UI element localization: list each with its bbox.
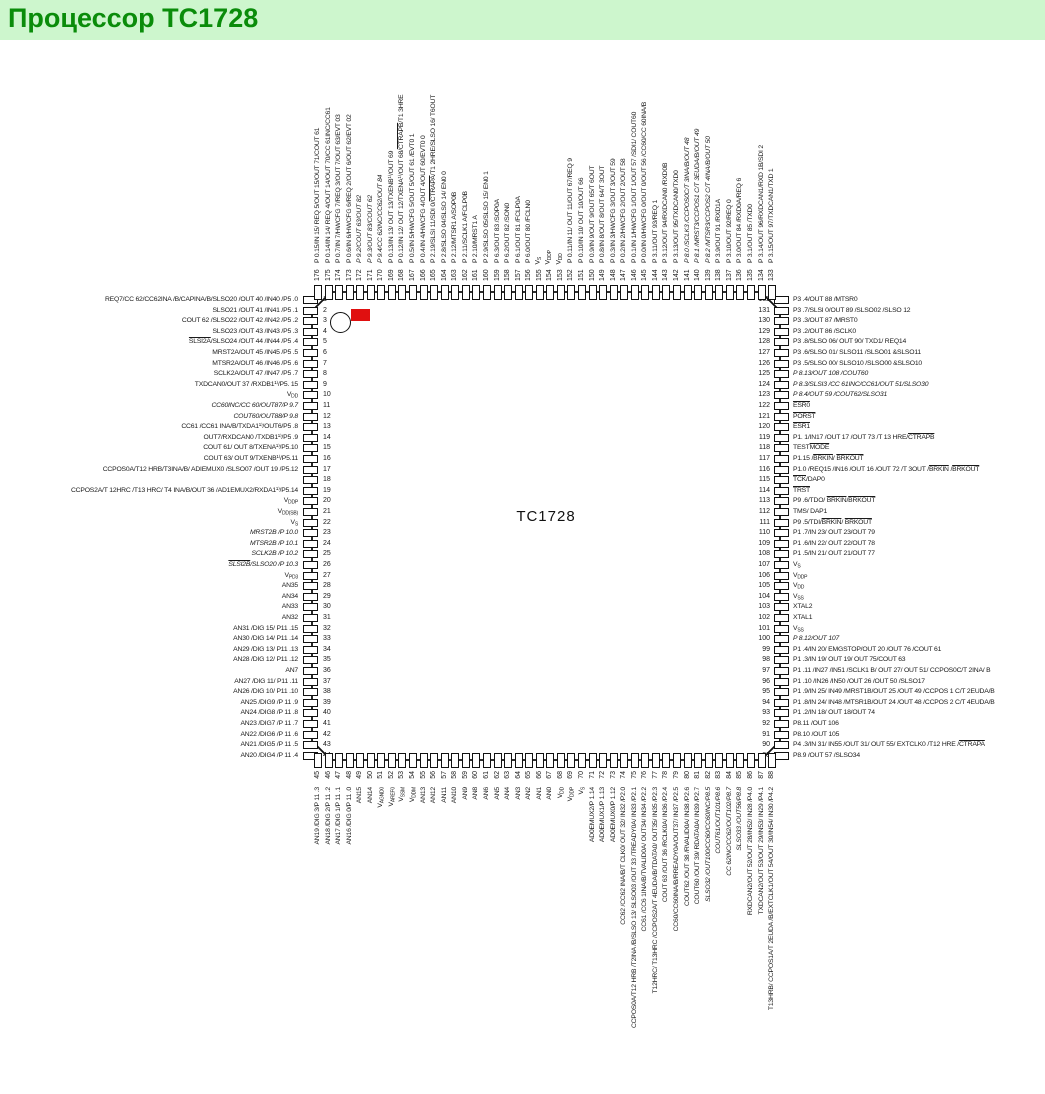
pin-symbol (567, 285, 575, 300)
pin-symbol (314, 753, 322, 768)
pin-symbol (451, 753, 459, 768)
pin-number: 128 (740, 338, 770, 346)
pin-label: COUT62 /OUT 38 /RVALID0A/ IN38 /P2.6 (684, 787, 692, 906)
pin-number: 78 (662, 771, 670, 779)
pin-number: 169 (388, 269, 396, 281)
pin-symbol (303, 370, 318, 378)
pin-label: P1.15 /BRKIN/ BRKOUT (793, 455, 863, 463)
pin-symbol (705, 753, 713, 768)
pin-symbol (774, 741, 789, 749)
pin-symbol (325, 753, 333, 768)
pin-symbol (774, 593, 789, 601)
pin-number: 139 (705, 269, 713, 281)
pin-symbol (420, 753, 428, 768)
pin-symbol (504, 285, 512, 300)
pin-symbol (303, 667, 318, 675)
pin-number: 73 (610, 771, 618, 779)
pin-symbol (774, 582, 789, 590)
pin-symbol (504, 753, 512, 768)
pin-label: P3 .2/OUT 86 /SCLK0 (793, 328, 856, 336)
pin-symbol (398, 285, 406, 300)
pin-symbol (774, 370, 789, 378)
pin-label: AN23 /DIG7 /P 11 .7 (20, 720, 298, 728)
pin-label: VDD (793, 582, 804, 592)
pin-symbol (774, 360, 789, 368)
pin-symbol (420, 285, 428, 300)
pin-number: 35 (323, 656, 349, 664)
pin-number: 109 (740, 540, 770, 548)
pin-symbol (303, 497, 318, 505)
pin-number: 50 (367, 771, 375, 779)
pin-number: 174 (335, 269, 343, 281)
pin-symbol (774, 678, 789, 686)
pin-label: P 3.11/OUT 93/REQ 1 (652, 200, 660, 263)
pin-number: 7 (323, 360, 349, 368)
pin-label: COUT61/OUT101/P8.6 (715, 787, 723, 854)
pin-number: 149 (599, 269, 607, 281)
pin-label: VS (20, 519, 298, 529)
pin-label: P 0.6/IN 6/HWCFG 6/REQ 2/OUT 6/OUT 62/EV… (346, 114, 354, 263)
pin-number: 137 (726, 269, 734, 281)
pin-number: 96 (740, 678, 770, 686)
pin-symbol (631, 285, 639, 300)
pin-number: 67 (546, 771, 554, 779)
pin-label: VDDP (567, 787, 577, 801)
pin-number: 43 (323, 741, 349, 749)
pin-label: P 9.3/OUT 83/COUT 62 (367, 195, 375, 263)
pin-symbol (303, 550, 318, 558)
pin-number: 60 (472, 771, 480, 779)
pin-number: 105 (740, 582, 770, 590)
pin-symbol (303, 349, 318, 357)
pin-symbol (774, 635, 789, 643)
pin-number: 22 (323, 519, 349, 527)
pin-number: 152 (567, 269, 575, 281)
pin-number: 129 (740, 328, 770, 336)
pin-number: 124 (740, 381, 770, 389)
pin-label: VSS (793, 625, 804, 635)
pin-label: P8.11 /OUT 106 (793, 720, 839, 728)
pin-number: 90 (740, 741, 770, 749)
pin-symbol (536, 285, 544, 300)
pin-label: AN22 /DIG6 /P 11 .6 (20, 731, 298, 739)
pin-symbol (367, 285, 375, 300)
pin-symbol (303, 720, 318, 728)
pin-number: 9 (323, 381, 349, 389)
pin-label: P 0.1/IN 1/HWCFG 1/OUT 1/OUT 57 /SDI1/ C… (631, 112, 639, 263)
pin-label: SCLK2A/OUT 47 /IN47 /P5 .7 (20, 370, 298, 378)
pin-label: AN10 (451, 787, 459, 803)
pin-number: 170 (377, 269, 385, 281)
pin-symbol (578, 753, 586, 768)
pin-symbol (774, 423, 789, 431)
pin-label: P1 .4/IN 20/ EMGSTOP/OUT 20 /OUT 76 /COU… (793, 646, 941, 654)
pin-number: 77 (652, 771, 660, 779)
pin-symbol (472, 753, 480, 768)
pin-label: VAREF0 (388, 787, 398, 806)
chip-name: TC1728 (312, 508, 780, 525)
pin-number: 46 (325, 771, 333, 779)
pin-symbol (303, 381, 318, 389)
pin-number: 141 (684, 269, 692, 281)
pin-symbol (641, 285, 649, 300)
pin-symbol (303, 678, 318, 686)
pin-number: 130 (740, 317, 770, 325)
pin-label: MRST2B /P 10.0 (20, 529, 298, 537)
pin-label: CCPOS2A/T 12HRC /T13 HRC/ T4 INA/B/OUT 3… (20, 487, 298, 495)
pin-number: 21 (323, 508, 349, 516)
pin-number: 163 (451, 269, 459, 281)
pin-number: 116 (740, 466, 770, 474)
pin-symbol (314, 285, 322, 300)
page-header: Процессор TC1728 (0, 0, 1045, 40)
pin-label: AN18 /DIG 2/P 11 .2 (325, 787, 333, 845)
pin-label: AN21 /DIG5 /P 11 .5 (20, 741, 298, 749)
pin-symbol (303, 466, 318, 474)
pin-number: 30 (323, 603, 349, 611)
pin-number: 76 (641, 771, 649, 779)
pin-label: P 3.13/OUT 95/TXDCAN0/TXD0 (673, 170, 681, 263)
pin-number: 95 (740, 688, 770, 696)
pin-label: TMS/ DAP1 (793, 508, 827, 516)
pin-symbol (303, 317, 318, 325)
pin-label: AN8 (472, 787, 480, 800)
pin-symbol (578, 285, 586, 300)
pin-symbol (303, 328, 318, 336)
pin-symbol (409, 753, 417, 768)
pin-number: 126 (740, 360, 770, 368)
pin-number: 100 (740, 635, 770, 643)
pin-symbol (462, 753, 470, 768)
pin-number: 45 (314, 771, 322, 779)
pin-symbol (303, 582, 318, 590)
pin-number: 127 (740, 349, 770, 357)
pin-symbol (398, 753, 406, 768)
pin-symbol (774, 391, 789, 399)
pin-number: 165 (430, 269, 438, 281)
pin-number: 135 (747, 269, 755, 281)
pin-label: P1 .8/IN 24/ IN48 /MTSR1B/OUT 24 /OUT 48… (793, 699, 995, 707)
pin-number: 102 (740, 614, 770, 622)
pin-symbol (631, 753, 639, 768)
pin-number: 63 (504, 771, 512, 779)
pin-label: P 9.2/COUT 63/OUT 82 (356, 195, 364, 263)
pin-label: P 0.0/IN 0/HWCFG 0/OUT 0/OUT 56 /CC60/CC… (641, 102, 649, 263)
pin-number: 8 (323, 370, 349, 378)
pin-number: 53 (398, 771, 406, 779)
pin-label: P3 .8/SLSO 06/ OUT 90/ TXD1/ REQ14 (793, 338, 906, 346)
pin-label: P1 .2/IN 18/ OUT 18/OUT 74 (793, 709, 875, 717)
pin-symbol (430, 285, 438, 300)
pin-number: 133 (768, 269, 776, 281)
pin-label: COUT 62 /SLSO22 /OUT 42 /IN42 /P5 .2 (20, 317, 298, 325)
pin-label: AN5 (494, 787, 502, 800)
pin-number: 72 (599, 771, 607, 779)
pin-label: CC 62INC/CC62/OUT102/P8.7 (726, 787, 734, 876)
pin-symbol (303, 593, 318, 601)
pin-label: AN13 (420, 787, 428, 803)
pin-symbol (430, 753, 438, 768)
pin-label: AN30 /DIG 14/ P11 .14 (20, 635, 298, 643)
pin-number: 85 (736, 771, 744, 779)
pin-label: VS (534, 257, 544, 264)
pin-label: SLSO23 /OUT 43 /IN43 /P5 .3 (20, 328, 298, 336)
pin-label: AD0EMUX2/P 1.14 (589, 787, 597, 842)
pin-number: 172 (356, 269, 364, 281)
pin-symbol (774, 699, 789, 707)
pin-label: P 0.2/IN 2/HWCFG 2/OUT 2/OUT 58 (620, 159, 628, 263)
pin-symbol (546, 285, 554, 300)
pin-symbol (356, 285, 364, 300)
pin-symbol (747, 753, 755, 768)
pin-number: 83 (715, 771, 723, 779)
pin-label: VSSM (398, 787, 408, 802)
pin-number: 158 (504, 269, 512, 281)
pin-number: 91 (740, 731, 770, 739)
pin-label: P 0.11/IN 11/ OUT 11/OUT 67/REQ 9 (567, 158, 575, 263)
pin-number: 153 (557, 269, 565, 281)
pin-label: P8.9 /OUT 57 /SLSO34 (793, 752, 860, 760)
pin-symbol (662, 285, 670, 300)
pin-symbol (483, 285, 491, 300)
pin-label: P 6.0/OUT 80 /FCLN0 (525, 200, 533, 263)
pin-label: SLSO33 /OUT56/P8.8 (736, 787, 744, 851)
pin-symbol (335, 753, 343, 768)
pin-symbol (774, 487, 789, 495)
pin-number: 157 (515, 269, 523, 281)
pin-number: 167 (409, 269, 417, 281)
pin-number: 120 (740, 423, 770, 431)
pin-label: MTSR2B /P 10.1 (20, 540, 298, 548)
pin-symbol (774, 381, 789, 389)
pin-number: 123 (740, 391, 770, 399)
pin-label: VS (793, 561, 800, 571)
pin-symbol (715, 753, 723, 768)
pin-symbol (589, 753, 597, 768)
pin-symbol (599, 753, 607, 768)
pin-symbol (715, 285, 723, 300)
chip-outline (311, 291, 781, 761)
pin-label: AN15 (356, 787, 364, 803)
pin-symbol (620, 753, 628, 768)
pin-symbol (705, 285, 713, 300)
pin-label: P 2.10/MRST1 A (472, 215, 480, 263)
pin-number: 81 (694, 771, 702, 779)
pin-number: 64 (515, 771, 523, 779)
pin-symbol (303, 614, 318, 622)
pin-label: TXDCAN0/OUT 37 /RXDB1¹⁾/P5. 15 (20, 381, 298, 389)
pin-label: P 0.5/IN 5/HWCFG 5/OUT 5/OUT 61 /EVT0 1 (409, 134, 417, 263)
pin-number: 136 (736, 269, 744, 281)
pin-number: 56 (430, 771, 438, 779)
pin-label: P 0.15/IN 15/ REQ 5/OUT 15/OUT 71/COUT 6… (314, 128, 322, 263)
pin-symbol (774, 497, 789, 505)
pin-number: 110 (740, 529, 770, 537)
pin-number: 37 (323, 678, 349, 686)
pin-number: 121 (740, 413, 770, 421)
pin-number: 164 (441, 269, 449, 281)
pin-label: AN9 (462, 787, 470, 800)
pin-symbol (758, 753, 766, 768)
pin-symbol (774, 519, 789, 527)
pin-symbol (557, 753, 565, 768)
pin-label: VPD3 (20, 572, 298, 582)
pin-number: 19 (323, 487, 349, 495)
pin1-red-marker (351, 309, 370, 321)
pin-label: AN31 /DIG 15/ P11 .15 (20, 625, 298, 633)
pin-label: AN28 /DIG 12/ P11 .12 (20, 656, 298, 664)
pin-symbol (774, 667, 789, 675)
pin-label: P3 .5/SLSO 00/ SLSO10 /SLSO00 &SLSO10 (793, 360, 922, 368)
pin-symbol (515, 285, 523, 300)
pin-symbol (536, 753, 544, 768)
pin-label: COUT 63/ OUT 9/TXENB¹⁾/P5.11 (20, 455, 298, 463)
pin-symbol (303, 709, 318, 717)
pin-label: P 9.4/CC 62INC/CC62/OUT 84 (377, 175, 385, 263)
pin-label: VS (578, 787, 588, 794)
pin-label: P 8.2 /MTSR3/CCPOS2 C/T 4INA/B/OUT 50 (705, 136, 713, 263)
pin-symbol (483, 753, 491, 768)
pin-number: 143 (662, 269, 670, 281)
pin-label: AN14 (367, 787, 375, 803)
pin-symbol (409, 285, 417, 300)
pin-label: AN25 /DIG9 /P 11 .9 (20, 699, 298, 707)
pin-label: P 2.11/SCLK1 A/FCLP0B (462, 191, 470, 263)
pin-label: VDDP (545, 250, 555, 264)
pin-label: AN29 /DIG 13/ P11 .13 (20, 646, 298, 654)
pin-symbol (684, 285, 692, 300)
pin-number: 140 (694, 269, 702, 281)
pin-label: P 2.8/SLSO 04/SLSO 14/ EN0 0 (441, 171, 449, 263)
pin-number: 23 (323, 529, 349, 537)
pin-label: XTAL1 (793, 614, 812, 622)
pin-number: 162 (462, 269, 470, 281)
pin-number: 117 (740, 455, 770, 463)
pin-number: 24 (323, 540, 349, 548)
pin-label: P 3.15/OUT 97/TXDCAN1/TXD 1 (768, 169, 776, 263)
pin-symbol (774, 402, 789, 410)
pin-number: 11 (323, 402, 349, 410)
pin-label: P 8.13/OUT 108 /COUT60 (793, 370, 868, 378)
pin-number: 115 (740, 476, 770, 484)
pin-symbol (774, 296, 789, 304)
pin-symbol (610, 753, 618, 768)
pin-symbol (303, 646, 318, 654)
pin-label: MTSR2A/OUT 46 /IN46 /P5 .6 (20, 360, 298, 368)
pin-symbol (774, 550, 789, 558)
pin-label: VDDP (793, 572, 807, 582)
pin-label: P 0.8/IN 8/OUT 8/OUT 64/T 3OUT (599, 166, 607, 263)
pin-number: 80 (684, 771, 692, 779)
pin-number: 5 (323, 338, 349, 346)
pin-label: AN32 (20, 614, 298, 622)
pin-symbol (774, 731, 789, 739)
pin-symbol (303, 476, 318, 484)
pin-number: 28 (323, 582, 349, 590)
pin-number: 54 (409, 771, 417, 779)
pin-label: CC60INC/CC 60/OUT87/P 9.7 (20, 402, 298, 410)
pin-label: P1.0 /REQ15 /IN16 /OUT 16 /OUT 72 /T 3OU… (793, 466, 979, 474)
pin-number: 87 (758, 771, 766, 779)
pin-number: 79 (673, 771, 681, 779)
pin-number: 10 (323, 391, 349, 399)
pin-label: AN20 /DIG4 /P 11 .4 (20, 752, 298, 760)
pin-symbol (494, 285, 502, 300)
pin-label: P 0.13/IN 13/ OUT 13/TXENB¹⁾/OUT 69 (388, 151, 396, 263)
pin-symbol (303, 444, 318, 452)
pin-symbol (774, 476, 789, 484)
pin-number: 119 (740, 434, 770, 442)
pin-symbol (303, 307, 318, 315)
pin-symbol (610, 285, 618, 300)
pin-number: 94 (740, 699, 770, 707)
pin-symbol (774, 307, 789, 315)
pin-number: 58 (451, 771, 459, 779)
pin-number: 107 (740, 561, 770, 569)
pin-number: 69 (567, 771, 575, 779)
pin-number: 39 (323, 699, 349, 707)
pin-symbol (774, 572, 789, 580)
pin-number: 144 (652, 269, 660, 281)
pin-symbol (303, 540, 318, 548)
pin-symbol (768, 285, 776, 300)
pin-number: 27 (323, 572, 349, 580)
pin-symbol (388, 285, 396, 300)
pin-label: SLSO32 /OUT100/CC60/CC60INC/P8.5 (705, 787, 713, 902)
pin-label: P 8.4/OUT 59 /COUT62/SLSO31 (793, 391, 887, 399)
pin-number: 98 (740, 656, 770, 664)
pin-symbol (774, 508, 789, 516)
pin-symbol (303, 699, 318, 707)
pin-label: AN17 /DIG 1/P 11 .1 (335, 787, 343, 845)
pin-symbol (774, 656, 789, 664)
pin-symbol (303, 455, 318, 463)
pin-symbol (303, 603, 318, 611)
pin-label: P 3.14/OUT 96/RXDCAN1/RXD 1B/SDI 2 (758, 145, 766, 263)
pin-label: VDDP (20, 497, 298, 507)
pin-number: 161 (472, 269, 480, 281)
pin-label: P4 .3/IN 31/ IN55 /OUT 31/ OUT 55/ EXTCL… (793, 741, 985, 749)
pin-number: 49 (356, 771, 364, 779)
pin-label: CC61 /CC61 INA/B/TXDA1¹⁾/OUT6/P5 .8 (20, 423, 298, 431)
pin-symbol (774, 413, 789, 421)
pin-symbol (303, 656, 318, 664)
pin-label: P 8.3/SLSI3 /CC 61INC/CC61/OUT 51/SLSO30 (793, 381, 928, 389)
pin-label: COUT60 /OUT 39/ RDATA0A/ IN39 /P2.7 (694, 787, 702, 904)
pin-number: 103 (740, 603, 770, 611)
pin-symbol (525, 285, 533, 300)
pin-number: 2 (323, 307, 349, 315)
pin-number: 82 (705, 771, 713, 779)
pin-number: 175 (325, 269, 333, 281)
pin-number: 59 (462, 771, 470, 779)
pin-symbol (303, 508, 318, 516)
pin-label: P 0.9/IN 9/OUT 9/OUT 65/T 6OUT (589, 166, 597, 263)
pin-label: AN27 /DIG 11/ P11 .11 (20, 678, 298, 686)
pin-symbol (673, 285, 681, 300)
pin-symbol (652, 285, 660, 300)
pin-label: VDD (20, 391, 298, 401)
pin-number: 66 (536, 771, 544, 779)
pin-label: P1 .9/IN 25/ IN49 /MRST1B/OUT 25 /OUT 49… (793, 688, 995, 696)
pin-symbol (774, 561, 789, 569)
pin-symbol (774, 540, 789, 548)
pin-label: SLSO21 /OUT 41 /IN41 /P5 .1 (20, 307, 298, 315)
pin-symbol (599, 285, 607, 300)
pin-label: VDD (557, 787, 567, 798)
pin-number: 34 (323, 646, 349, 654)
pin-number: 17 (323, 466, 349, 474)
